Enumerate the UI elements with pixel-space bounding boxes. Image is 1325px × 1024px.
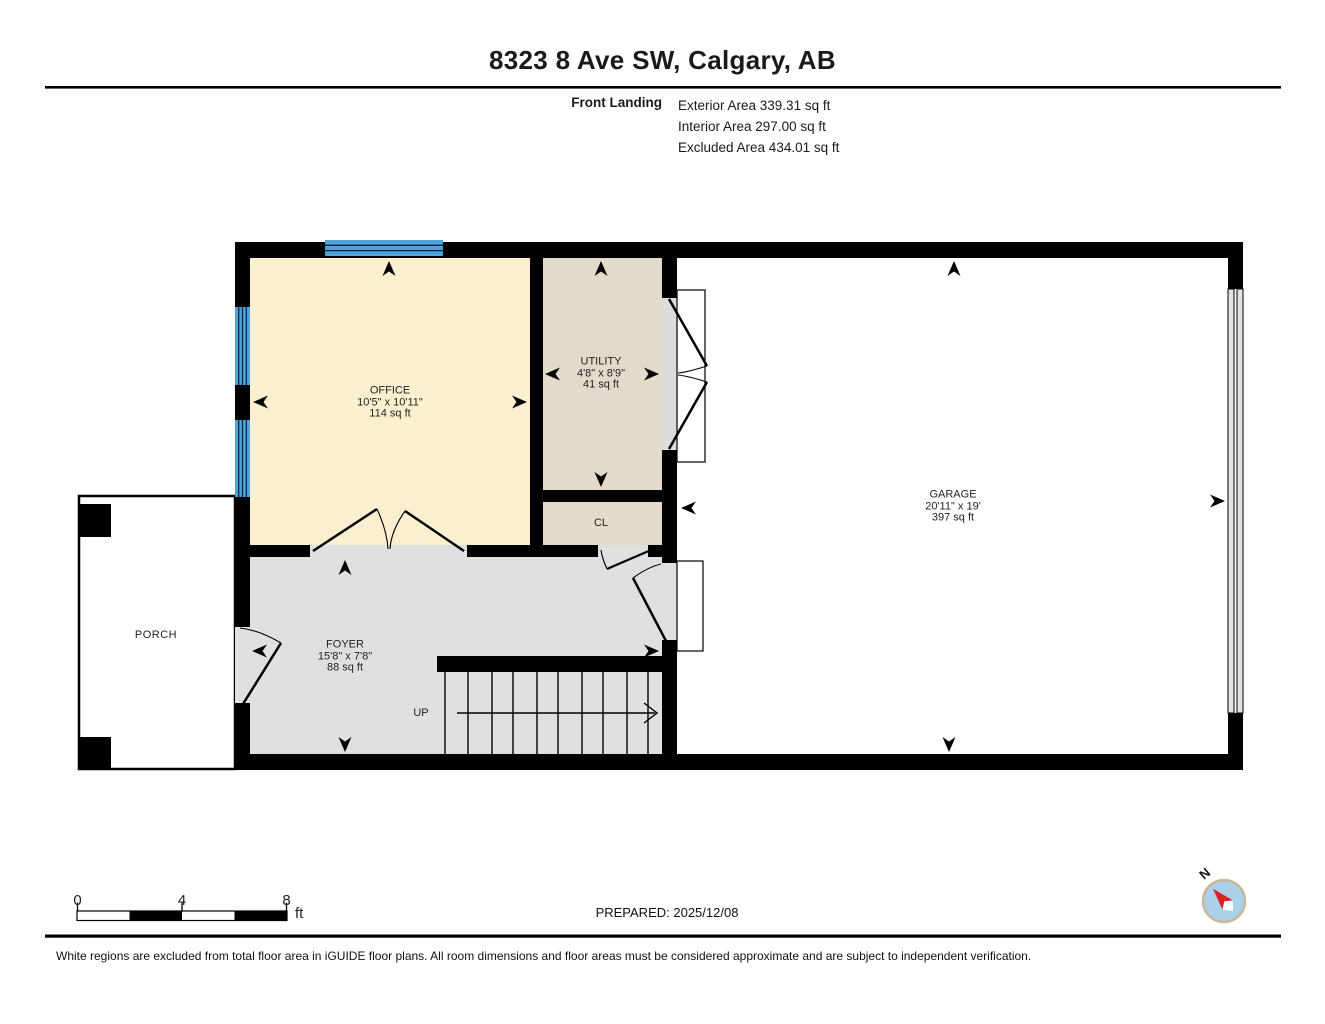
garage-door bbox=[1228, 289, 1243, 713]
interior-area: Interior Area 297.00 sq ft bbox=[678, 116, 839, 137]
porch-post bbox=[78, 737, 111, 770]
office-label: OFFICE 10'5" x 10'11" 114 sq ft bbox=[357, 386, 423, 421]
foyer-floor bbox=[250, 557, 662, 754]
exterior-area: Exterior Area 339.31 sq ft bbox=[678, 95, 839, 116]
disclaimer-text: White regions are excluded from total fl… bbox=[56, 949, 1031, 963]
porch-post bbox=[78, 504, 111, 537]
scale-unit: ft bbox=[295, 905, 303, 922]
scale-label-0: 0 bbox=[73, 892, 81, 909]
area-summary: Exterior Area 339.31 sq ft Interior Area… bbox=[678, 95, 839, 158]
window-top bbox=[325, 240, 443, 256]
scale-label-4: 4 bbox=[178, 892, 186, 909]
level-name: Front Landing bbox=[571, 95, 662, 110]
closet-label: CL bbox=[594, 518, 608, 530]
room-fills bbox=[250, 258, 1228, 754]
floor-plan-page: 8323 8 Ave SW, Calgary, AB Front Landing… bbox=[0, 0, 1325, 1024]
window-left-lower bbox=[235, 420, 250, 497]
garage-label: GARAGE 20'11" x 19' 397 sq ft bbox=[925, 490, 981, 525]
porch-label: PORCH bbox=[135, 630, 177, 642]
prepared-date: PREPARED: 2025/12/08 bbox=[596, 905, 739, 920]
foyer-label: FOYER 15'8" x 7'8" 88 sq ft bbox=[318, 640, 372, 675]
page-title: 8323 8 Ave SW, Calgary, AB bbox=[0, 45, 1325, 76]
window-left-upper bbox=[235, 307, 250, 385]
floor-plan-graphic bbox=[0, 0, 1325, 1024]
stairs-up-label: UP bbox=[413, 708, 428, 720]
utility-label: UTILITY 4'8" x 8'9" 41 sq ft bbox=[577, 357, 625, 392]
compass-icon bbox=[1203, 880, 1245, 922]
excluded-area: Excluded Area 434.01 sq ft bbox=[678, 137, 839, 158]
scale-label-8: 8 bbox=[282, 892, 290, 909]
